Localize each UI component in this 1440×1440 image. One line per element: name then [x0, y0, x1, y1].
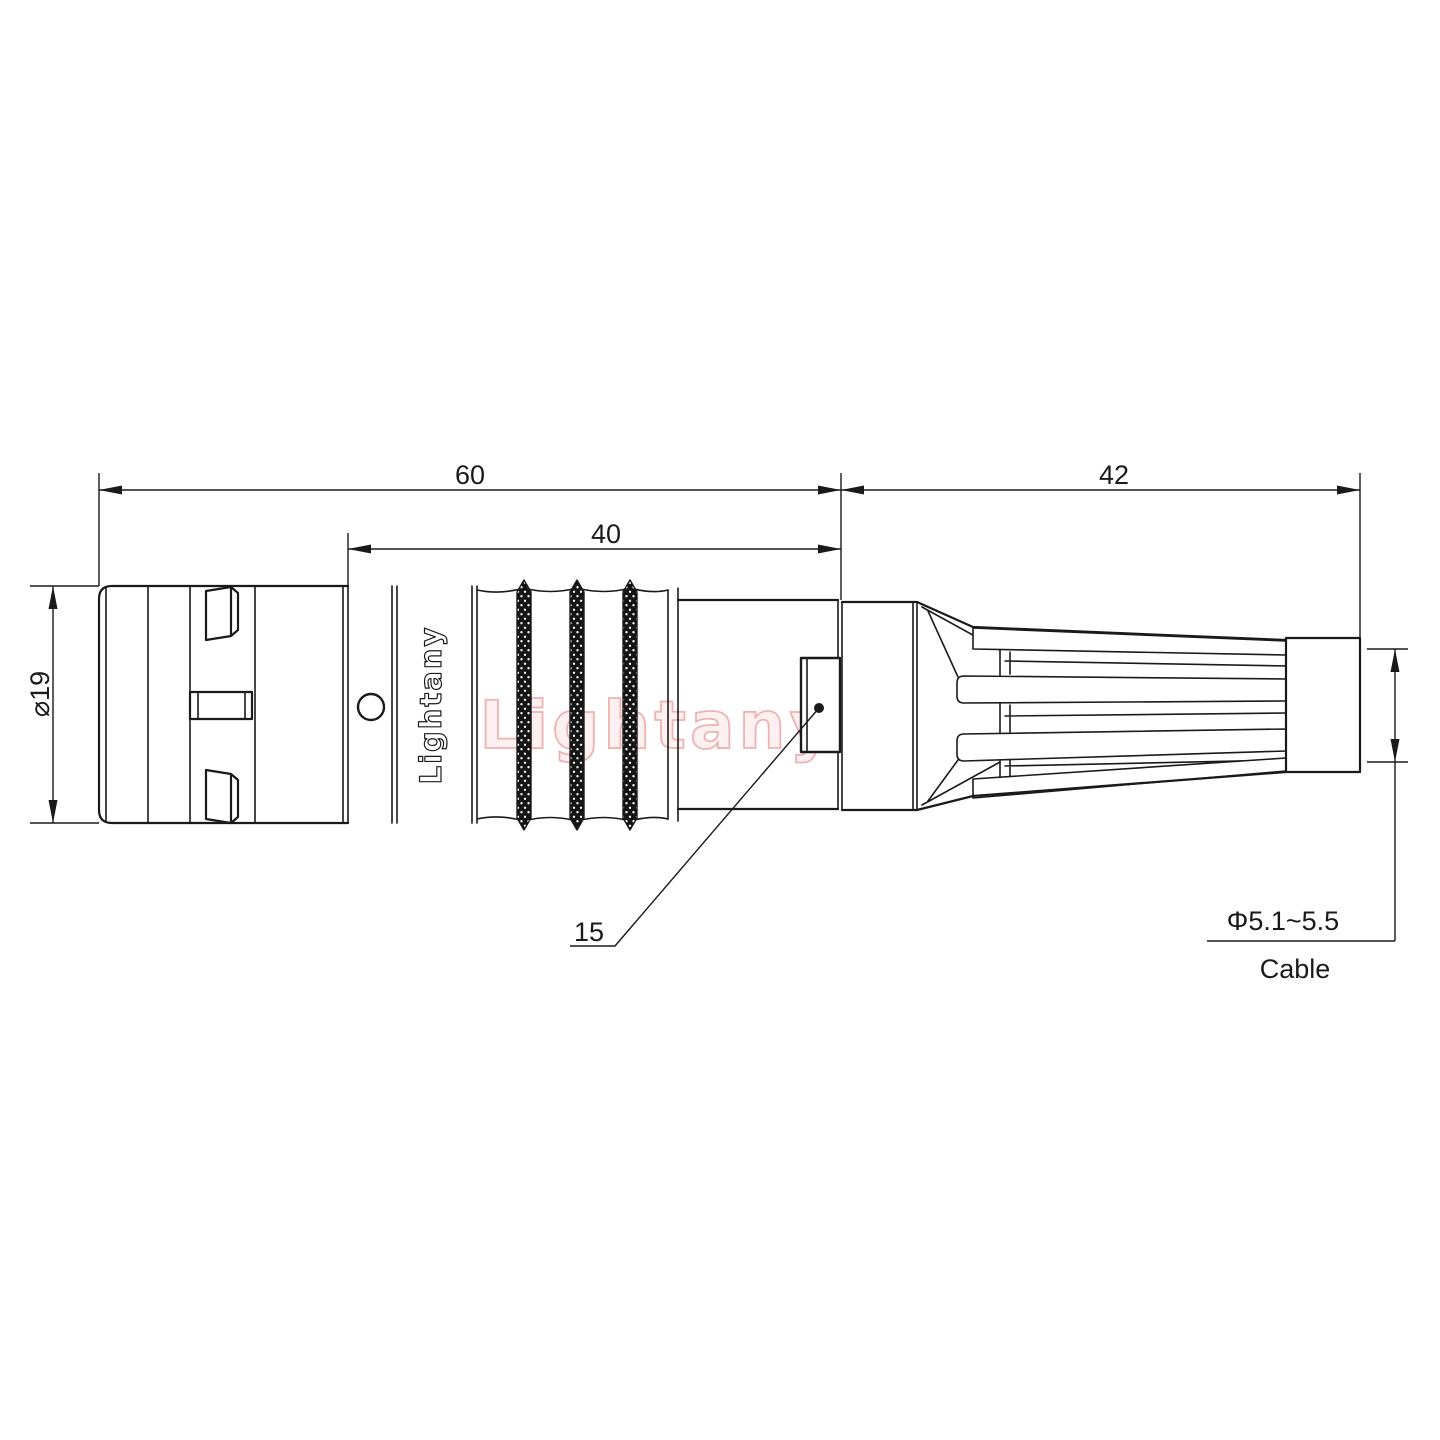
watermark-text: Lightany [479, 687, 836, 764]
bayonet-tab-bottom [206, 770, 238, 823]
dimension-label-diameter19: ⌀19 [25, 671, 55, 717]
bayonet-tab-top [206, 587, 238, 640]
cable-label: Cable [1260, 954, 1331, 984]
technical-drawing-page: Lightany Lightany [0, 0, 1440, 1440]
leader-dot [814, 703, 824, 713]
boot-fin [957, 676, 1286, 703]
cable-diameter-label: Φ5.1~5.5 [1227, 906, 1339, 936]
dimension-label-60: 60 [455, 460, 485, 490]
watermark: Lightany [479, 687, 836, 764]
latch-slot [190, 692, 252, 719]
dimension-label-42: 42 [1099, 460, 1129, 490]
knurled-band [570, 580, 584, 830]
brand-text: Lightany [414, 626, 448, 785]
knurled-band [517, 580, 531, 830]
dimension-label-15: 15 [574, 917, 604, 947]
cable-end-cap [1286, 638, 1360, 772]
dimension-label-40: 40 [591, 519, 621, 549]
connector-technical-drawing: Lightany Lightany [0, 0, 1440, 1440]
knurled-band [623, 580, 637, 830]
